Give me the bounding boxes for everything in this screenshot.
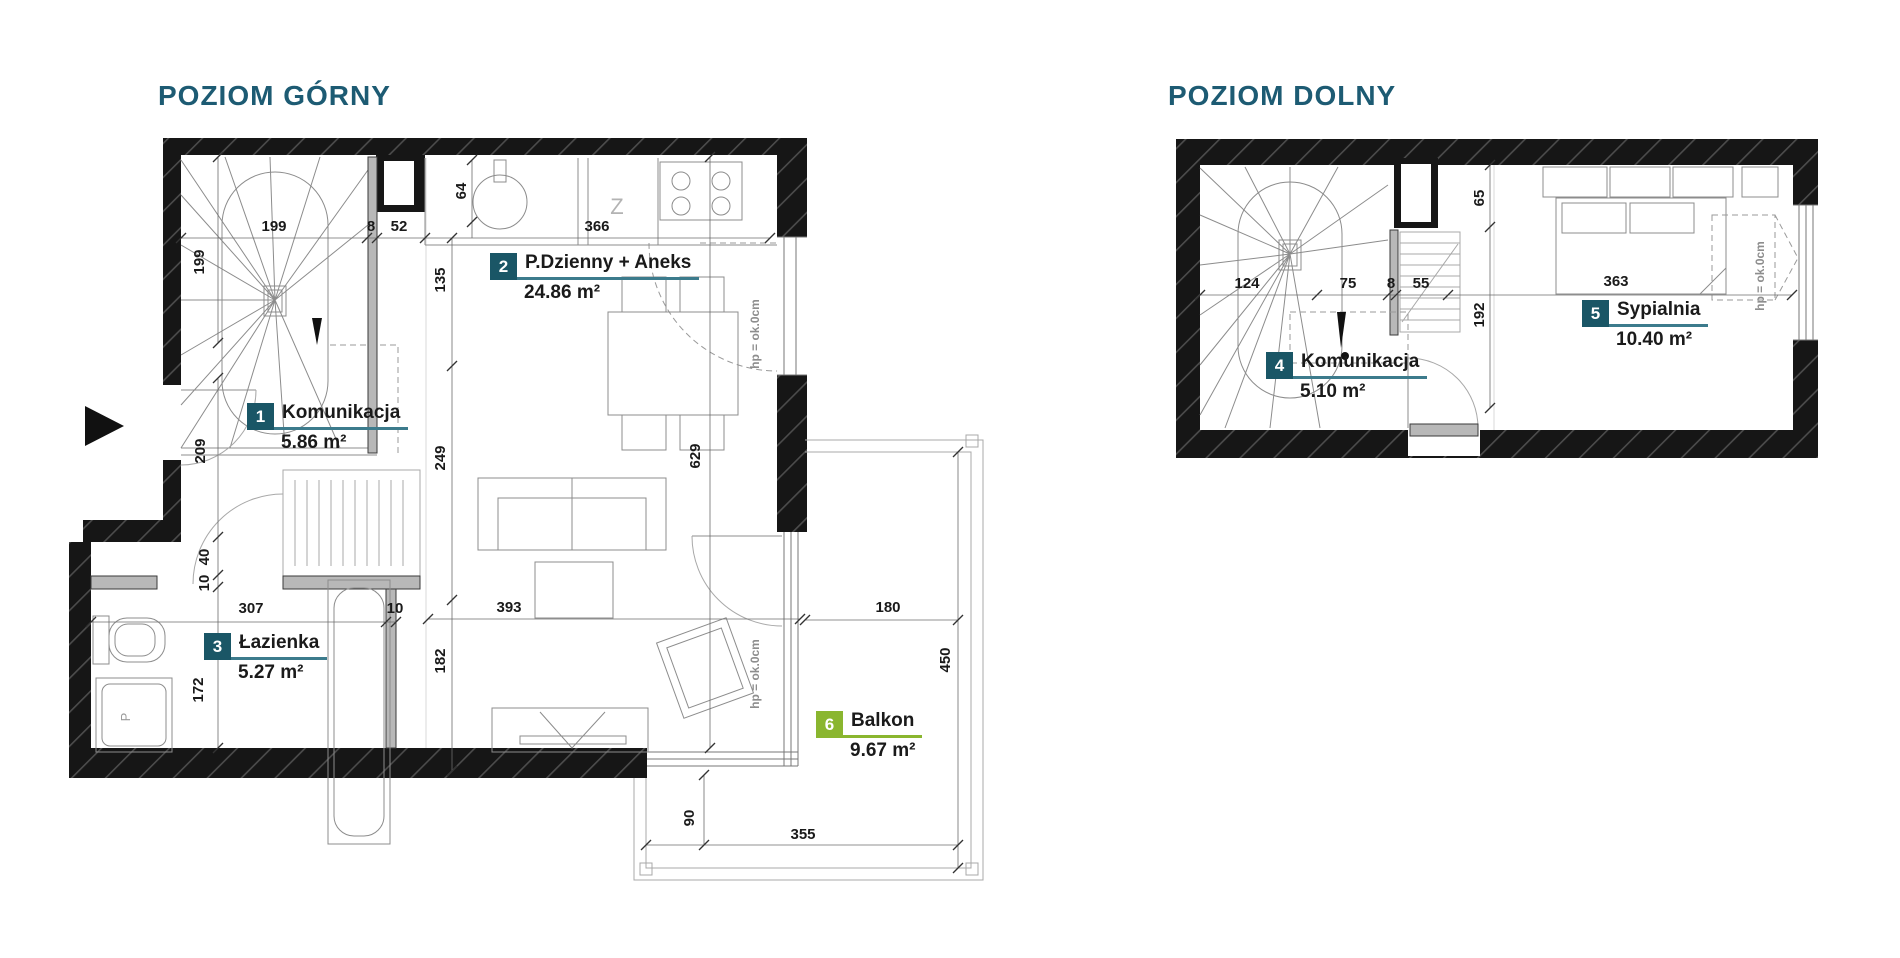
- dim-192: 192: [1471, 302, 1488, 327]
- dim-40: 40: [196, 549, 213, 566]
- bed: [1543, 167, 1778, 294]
- sofa: [478, 478, 666, 550]
- dim-55: 55: [1413, 275, 1430, 292]
- washing-machine-icon: [96, 678, 172, 752]
- room-number-badge-5: 5: [1582, 300, 1609, 327]
- floor-plan-page: POZIOM GÓRNY POZIOM DOLNY: [0, 0, 1900, 958]
- room-number-badge-1: 1: [247, 403, 274, 430]
- room-area-komunikacja-upper: 5.86 m²: [281, 432, 408, 454]
- dim-366: 366: [584, 218, 609, 235]
- toilet-icon: [93, 616, 165, 664]
- dim-450: 450: [937, 647, 954, 672]
- dim-182: 182: [432, 648, 449, 673]
- dim-629: 629: [687, 443, 704, 468]
- coffee-table: [535, 562, 613, 618]
- room-name-komunikacja-lower: Komunikacja: [1293, 349, 1427, 379]
- room-area-sypialnia: 10.40 m²: [1616, 329, 1708, 351]
- hp-note-lower: hp = ok.0cm: [1753, 241, 1767, 311]
- room-name-sypialnia: Sypialnia: [1609, 297, 1708, 327]
- room-area-balkon: 9.67 m²: [850, 740, 922, 762]
- dim-10-horiz: 10: [387, 600, 404, 617]
- kitchen-z-label: Z: [610, 194, 623, 219]
- dim-8: 8: [367, 218, 375, 235]
- bathroom-partition-right: [283, 576, 420, 589]
- bathroom-door-arc: [193, 494, 283, 584]
- room-label-lazienka: 3 Łazienka 5.27 m²: [204, 630, 327, 684]
- dim-199-top: 199: [261, 218, 286, 235]
- lower-window-right: [1793, 205, 1818, 340]
- room-label-komunikacja-lower: 4 Komunikacja 5.10 m²: [1266, 349, 1427, 403]
- dim-52: 52: [391, 218, 408, 235]
- entrance-arrow-icon: [85, 406, 124, 446]
- room-label-balkon: 6 Balkon 9.67 m²: [816, 708, 922, 762]
- room-area-komunikacja-lower: 5.10 m²: [1300, 381, 1427, 403]
- dim-249: 249: [432, 445, 449, 470]
- upper-plan-title: POZIOM GÓRNY: [158, 80, 391, 112]
- dim-363: 363: [1603, 273, 1628, 290]
- bathtub-icon: [328, 580, 390, 844]
- dim-8-lower: 8: [1387, 275, 1395, 292]
- room-label-pdzienny: 2 P.Dzienny + Aneks 24.86 m²: [490, 250, 699, 304]
- wardrobe: [283, 470, 420, 576]
- room-number-badge-6: 6: [816, 711, 843, 738]
- balcony-door: [692, 536, 782, 626]
- lower-stair-wedge: [1337, 312, 1346, 348]
- room-name-komunikacja-upper: Komunikacja: [274, 400, 408, 430]
- hp-note-door: hp = ok.0cm: [748, 639, 762, 709]
- room-name-pdzienny: P.Dzienny + Aneks: [517, 250, 699, 280]
- upper-window-right: [777, 237, 807, 375]
- tv-stand: [492, 708, 648, 752]
- upper-glazed-wall-balcony: [647, 532, 798, 766]
- kitchen-hob-icon: [660, 162, 742, 220]
- room-name-lazienka: Łazienka: [231, 630, 327, 660]
- dim-90: 90: [681, 810, 698, 827]
- room-number-badge-4: 4: [1266, 352, 1293, 379]
- dim-209: 209: [192, 438, 209, 463]
- straight-stairs: [1400, 232, 1460, 332]
- dim-393: 393: [496, 599, 521, 616]
- hp-note-window: hp = ok.0cm: [748, 299, 762, 369]
- room-area-lazienka: 5.27 m²: [238, 662, 327, 684]
- dim-75: 75: [1340, 275, 1357, 292]
- dim-355: 355: [790, 826, 815, 843]
- dim-199-left: 199: [191, 249, 208, 274]
- armchair: [657, 618, 754, 718]
- dim-10-vert: 10: [196, 575, 213, 592]
- room-number-badge-2: 2: [490, 253, 517, 280]
- room-name-balkon: Balkon: [843, 708, 922, 738]
- dim-64: 64: [453, 182, 470, 199]
- room-number-badge-3: 3: [204, 633, 231, 660]
- floor-plan-drawing: Z: [0, 0, 1900, 958]
- bathroom-partition-left: [91, 576, 157, 589]
- dim-135: 135: [432, 267, 449, 292]
- dim-124: 124: [1234, 275, 1260, 292]
- lower-plan-title: POZIOM DOLNY: [1168, 80, 1396, 112]
- washer-p-label: P: [118, 713, 133, 722]
- room-label-sypialnia: 5 Sypialnia 10.40 m²: [1582, 297, 1708, 351]
- dim-307: 307: [238, 600, 263, 617]
- kitchen-sink-icon: [473, 175, 527, 229]
- room-area-pdzienny: 24.86 m²: [524, 282, 699, 304]
- dim-65: 65: [1471, 190, 1488, 207]
- dim-180: 180: [875, 599, 900, 616]
- stair-direction-wedge: [312, 318, 322, 345]
- room-label-komunikacja-upper: 1 Komunikacja 5.86 m²: [247, 400, 408, 454]
